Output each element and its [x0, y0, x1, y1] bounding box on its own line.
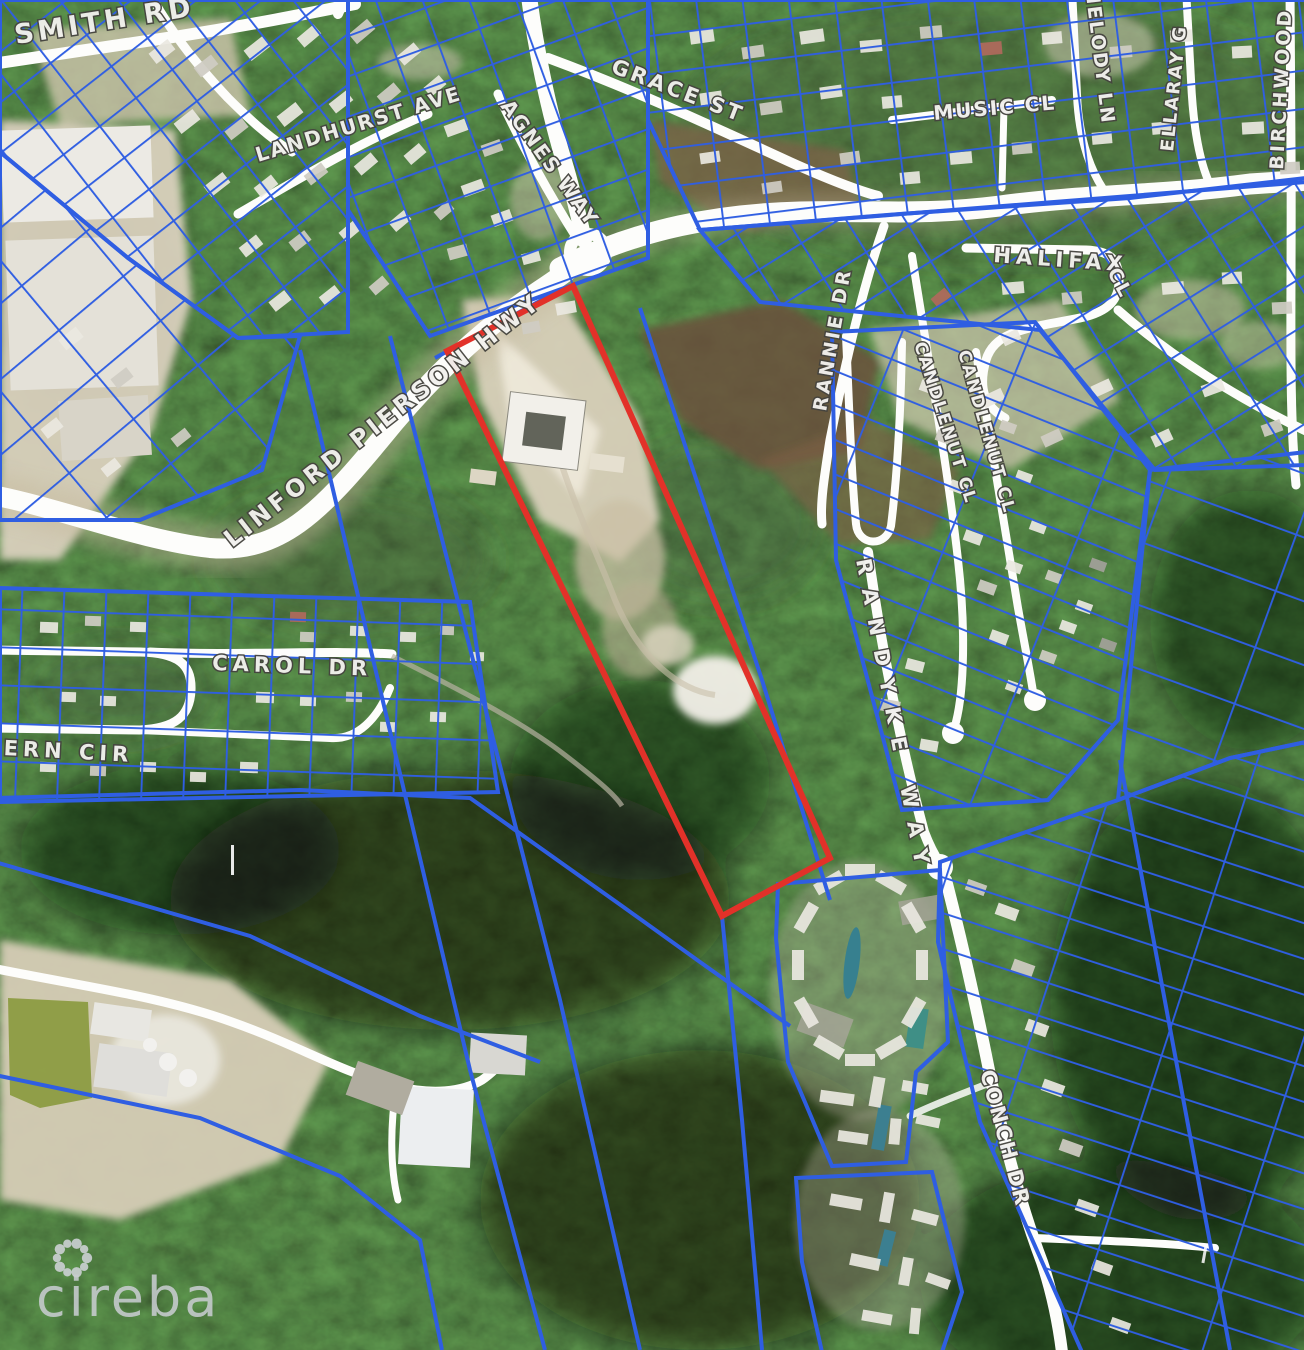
large-building	[398, 1086, 474, 1168]
flower-petal	[80, 1245, 88, 1253]
flower-petal	[63, 1240, 71, 1248]
flower-petal	[53, 1254, 61, 1262]
building	[888, 1118, 901, 1145]
building	[845, 1054, 875, 1066]
survey-tick	[231, 845, 234, 875]
building	[792, 950, 804, 980]
flower-petal	[71, 1239, 81, 1249]
building	[916, 950, 928, 980]
satellite-map[interactable]: SMITH RDLANDHURST AVEAGNES WAYGRACE STMU…	[0, 0, 1304, 1350]
map-canvas[interactable]: SMITH RDLANDHURST AVEAGNES WAYGRACE STMU…	[0, 0, 1304, 1350]
cireba-logo-text: cireba	[36, 1266, 220, 1329]
flower-petal	[82, 1253, 92, 1263]
flower-petal	[55, 1244, 65, 1254]
